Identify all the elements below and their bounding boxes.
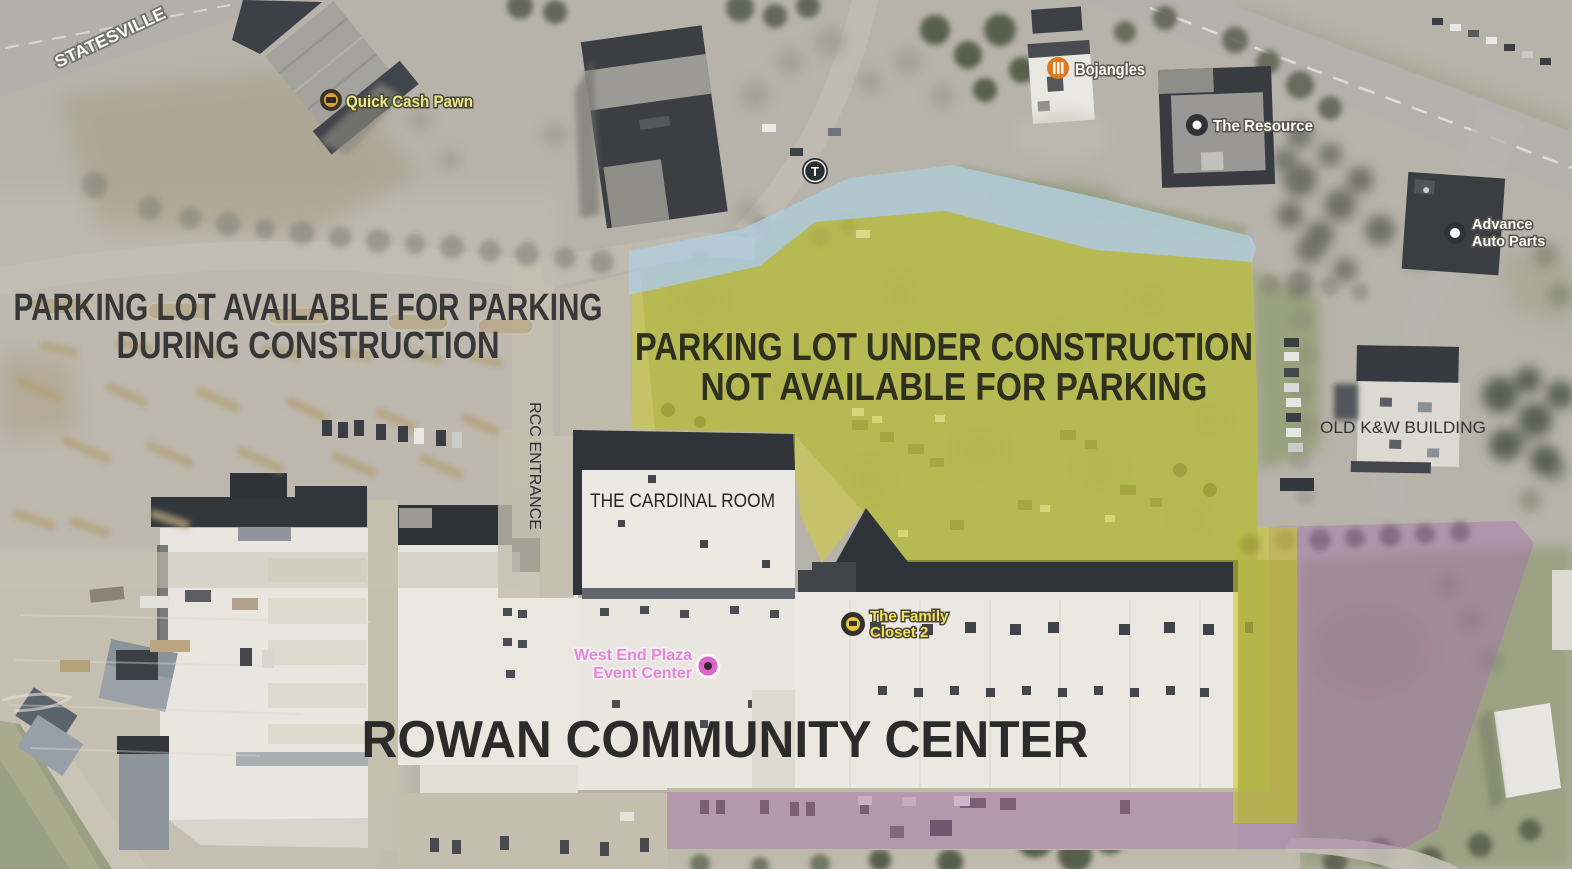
svg-text:OLD K&W BUILDING: OLD K&W BUILDING (1320, 419, 1486, 437)
svg-text:RCC ENTRANCE: RCC ENTRANCE (526, 402, 543, 530)
svg-text:THE CARDINAL ROOM: THE CARDINAL ROOM (590, 491, 775, 512)
svg-text:Advance: Advance (1472, 217, 1532, 233)
svg-text:DURING CONSTRUCTION: DURING CONSTRUCTION (117, 325, 500, 367)
svg-text:Event Center: Event Center (593, 665, 692, 682)
svg-text:PARKING LOT UNDER CONSTRUCTION: PARKING LOT UNDER CONSTRUCTION (635, 326, 1253, 369)
svg-text:ROWAN COMMUNITY CENTER: ROWAN COMMUNITY CENTER (362, 711, 1089, 769)
svg-text:The Resource: The Resource (1213, 118, 1313, 135)
svg-text:PARKING LOT AVAILABLE FOR PARK: PARKING LOT AVAILABLE FOR PARKING (14, 287, 603, 329)
svg-text:Quick Cash Pawn: Quick Cash Pawn (346, 93, 473, 111)
svg-text:The Family: The Family (870, 608, 949, 625)
svg-text:Auto Parts: Auto Parts (1472, 234, 1545, 250)
svg-text:Bojangles: Bojangles (1075, 61, 1145, 79)
svg-text:Closet 2: Closet 2 (870, 624, 928, 641)
svg-text:NOT AVAILABLE FOR PARKING: NOT AVAILABLE FOR PARKING (701, 366, 1208, 409)
svg-text:West End Plaza: West End Plaza (574, 647, 692, 664)
svg-text:T: T (811, 164, 819, 179)
